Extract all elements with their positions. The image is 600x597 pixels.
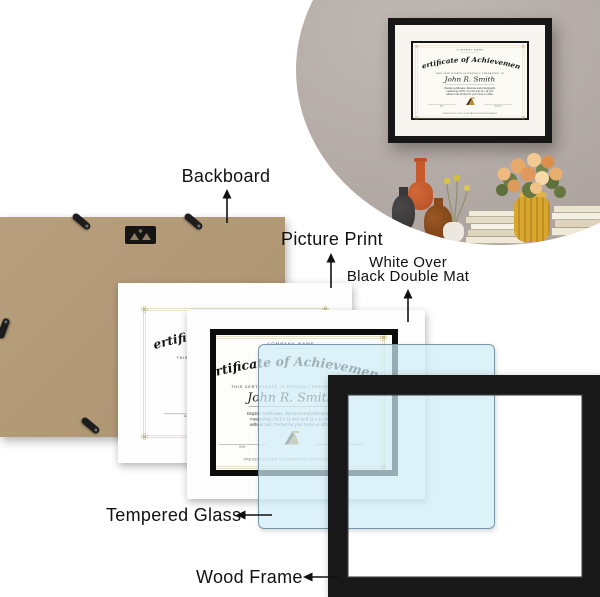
floral-corner-ornament-icon [141, 306, 148, 313]
arrow-up-icon [221, 189, 233, 223]
floral-corner-ornament-icon [521, 116, 525, 120]
retainer-clip-icon [71, 212, 92, 231]
picture-print-label: Picture Print [281, 229, 383, 250]
certificate-body-line: without mat. Perfect for your home or of… [415, 93, 525, 96]
certificate-arched-title: Certificate of Achievement [418, 53, 522, 71]
lifestyle-photo: COMPANY NAMECertificate of AchievementTH… [296, 0, 600, 245]
award-seal-icon [465, 97, 475, 105]
wood-frame-layer [328, 375, 600, 597]
floral-corner-ornament-icon [141, 433, 148, 440]
arrow-up-icon [402, 289, 414, 322]
arrow-left-icon [303, 571, 339, 583]
backboard-label: Backboard [182, 166, 271, 187]
rose-bouquet-icon [490, 146, 570, 202]
yellow-vase [514, 197, 550, 242]
svg-text:Certificate of Achievement: Certificate of Achievement [418, 53, 522, 71]
retainer-clip-icon [0, 317, 10, 339]
certificate-company-name: COMPANY NAME [415, 49, 525, 51]
date-label: Date [428, 106, 455, 108]
certificate-recipient-name: John R. Smith [415, 75, 525, 83]
wood-frame-label: Wood Frame [196, 567, 303, 588]
double-mat-label-line2: Black Double Mat [347, 270, 469, 284]
white-bud-vase [443, 222, 464, 242]
signature-label: Signature [484, 106, 511, 108]
certificate-body-text: Display certificates, diplomas and photo… [415, 87, 525, 96]
product-infographic: { "labels": { "backboard": "Backboard", … [0, 0, 600, 596]
dark-bottle-body [392, 195, 415, 231]
tempered-glass-label: Tempered Glass [106, 505, 241, 526]
double-mat-label: White Over Black Double Mat [347, 256, 469, 283]
floral-corner-ornament-icon [380, 335, 387, 341]
floral-corner-ornament-icon [414, 116, 418, 120]
photo-scene: COMPANY NAMECertificate of AchievementTH… [296, 0, 600, 245]
retainer-clip-icon [183, 212, 204, 231]
sawtooth-hanger-icon [125, 226, 156, 244]
hung-certificate: COMPANY NAMECertificate of AchievementTH… [415, 45, 525, 119]
certificate-footer-line: PRESENTED FOR OUTSTANDING ACHIEVEMENT [415, 112, 525, 114]
arrow-left-icon [236, 509, 272, 521]
arrow-up-icon [325, 253, 337, 288]
retainer-clip-icon [80, 416, 101, 435]
orange-bottle-neck [416, 161, 425, 184]
